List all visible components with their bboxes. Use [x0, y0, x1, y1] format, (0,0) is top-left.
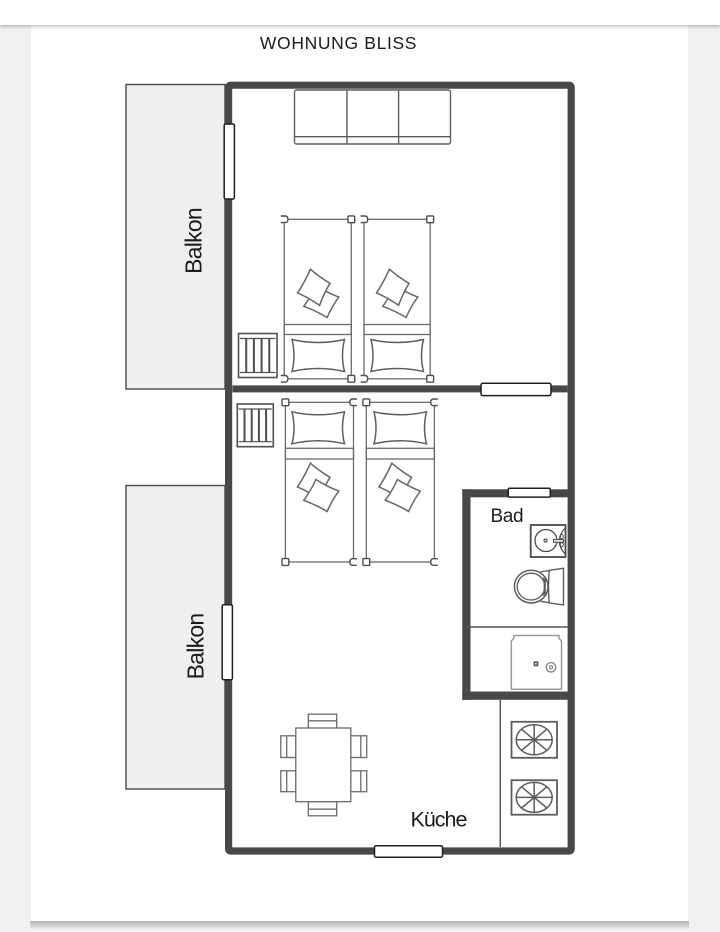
svg-text:WOHNUNG BLISS: WOHNUNG BLISS [260, 33, 417, 53]
svg-text:Bad: Bad [491, 506, 524, 527]
svg-text:Balkon: Balkon [183, 614, 209, 680]
svg-text:Balkon: Balkon [181, 208, 207, 274]
svg-text:Küche: Küche [411, 808, 467, 832]
